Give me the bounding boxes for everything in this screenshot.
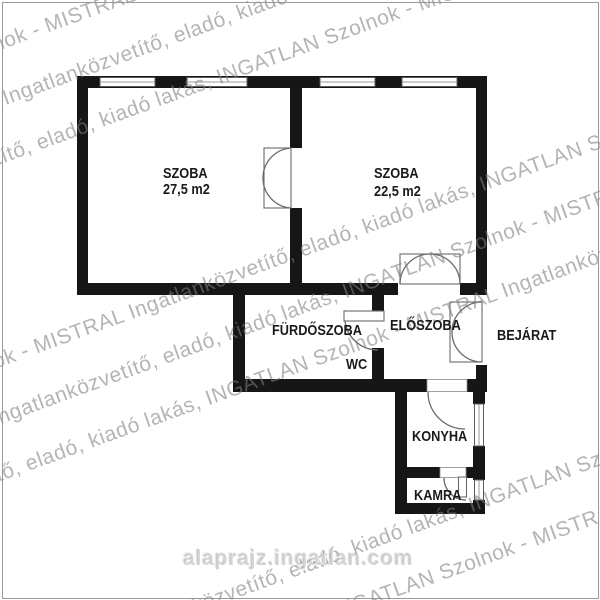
wall-room-divider-lower (290, 208, 302, 283)
wall-left (77, 76, 88, 295)
wall-right-upper (476, 76, 487, 290)
room-label-eloszoba: ELŐSZOBA (390, 318, 461, 334)
door-leaf-bathroom (344, 311, 384, 321)
room-label-szoba-2: SZOBA 22,5 m2 (374, 165, 421, 201)
wall-kitchen-left (395, 391, 407, 514)
room-label-furdoszoba: FÜRDŐSZOBA (272, 323, 362, 339)
wall-bathroom-left (233, 294, 245, 391)
room-name: SZOBA (374, 165, 421, 183)
wall-pantry-divider-left (395, 467, 440, 478)
room-label-konyha: KONYHA (412, 429, 467, 445)
wall-bath-hall-upper (372, 294, 384, 312)
wall-pantry-bottom (395, 503, 485, 514)
door-leaf-room2-hall (400, 254, 460, 284)
room-area: 22,5 m2 (374, 183, 421, 201)
room-label-kamra: KAMRA (414, 488, 461, 504)
wall-pantry-divider-right (466, 467, 485, 478)
wall-room-divider-upper (290, 87, 302, 148)
wall-rooms-bottom-left (77, 283, 398, 295)
door-opening-kitchen (427, 380, 467, 392)
room-area: 27,5 m2 (163, 182, 210, 198)
floor-plan-svg (0, 0, 600, 600)
room-label-wc: WC (346, 357, 367, 373)
door-opening-pantry (440, 468, 466, 478)
door-leaf-rooms (264, 148, 291, 208)
room-label-szoba-1: SZOBA 27,5 m2 (163, 166, 210, 198)
door-arc (428, 392, 465, 429)
room-name: SZOBA (163, 166, 210, 182)
walls (77, 76, 487, 514)
wall-midband-bottom-left (233, 379, 427, 392)
wall-kitchen-right-a (473, 387, 485, 404)
floor-plan-image: INGATLAN Szolnok - MISTRAL Ingatlanközve… (0, 0, 600, 600)
wall-rooms-bottom-right (460, 283, 487, 295)
wall-right-below-entrance (476, 365, 487, 387)
label-bejarat: BEJÁRAT (497, 328, 556, 344)
